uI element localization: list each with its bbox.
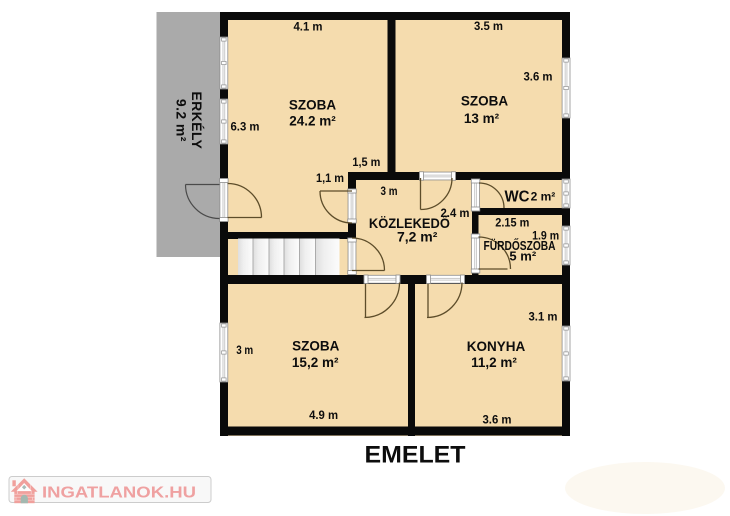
svg-text:9.2 m²: 9.2 m² (173, 99, 189, 142)
svg-text:KONYHA: KONYHA (467, 339, 526, 354)
svg-text:4.9 m: 4.9 m (309, 408, 338, 422)
svg-text:EMELET: EMELET (365, 442, 466, 469)
svg-text:2.15 m: 2.15 m (495, 216, 529, 230)
svg-text:3.6 m: 3.6 m (524, 70, 553, 84)
svg-text:1,1 m: 1,1 m (316, 171, 344, 185)
svg-text:15,2 m²: 15,2 m² (292, 355, 339, 370)
svg-text:13 m²: 13 m² (464, 111, 500, 126)
svg-text:24.2 m²: 24.2 m² (289, 114, 336, 129)
svg-text:7,2 m²: 7,2 m² (397, 229, 438, 245)
svg-text:2 m²: 2 m² (531, 189, 556, 203)
svg-text:11,2 m²: 11,2 m² (471, 355, 517, 370)
svg-text:5 m²: 5 m² (509, 249, 536, 264)
svg-text:3 m: 3 m (381, 184, 398, 198)
svg-text:INGATLANOK.HU: INGATLANOK.HU (42, 485, 196, 502)
svg-text:3.5 m: 3.5 m (474, 19, 503, 33)
svg-text:SZOBA: SZOBA (292, 339, 340, 354)
svg-text:3.1 m: 3.1 m (529, 310, 558, 324)
svg-text:6.3 m: 6.3 m (231, 120, 260, 134)
svg-text:ERKÉLY: ERKÉLY (189, 91, 205, 149)
svg-text:SZOBA: SZOBA (461, 94, 509, 109)
svg-text:3.6 m: 3.6 m (483, 413, 512, 427)
svg-text:4.1 m: 4.1 m (294, 20, 323, 34)
svg-text:1,5 m: 1,5 m (352, 155, 380, 169)
svg-text:SZOBA: SZOBA (289, 98, 337, 113)
svg-text:WC: WC (505, 189, 530, 206)
svg-text:3 m: 3 m (236, 343, 253, 357)
